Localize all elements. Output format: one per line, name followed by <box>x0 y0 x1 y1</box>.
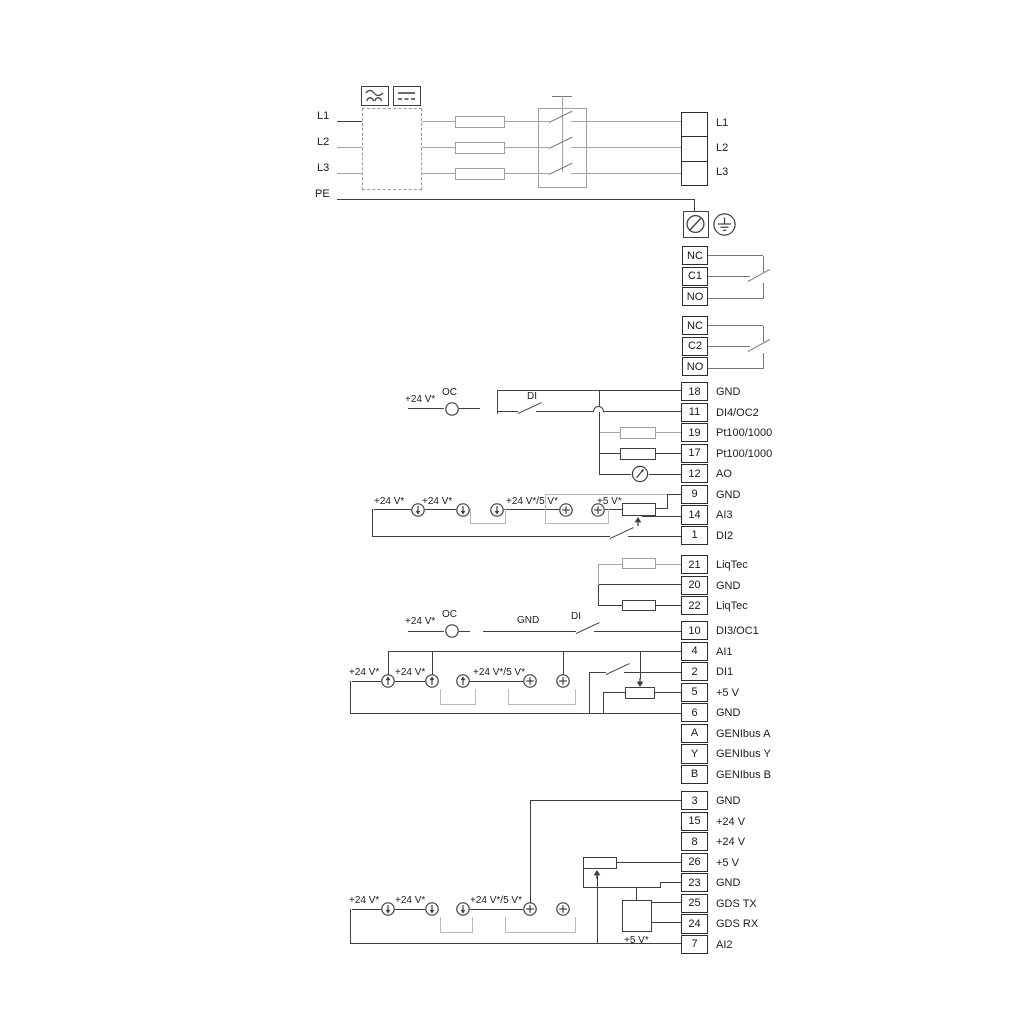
wire-segment <box>708 368 763 369</box>
terminal-18: 18 <box>681 382 708 401</box>
voltage-source-icon <box>559 503 573 517</box>
terminal-12: 12 <box>681 464 708 483</box>
terminal-label-out-L2: L2 <box>716 142 728 154</box>
terminal-Y: Y <box>681 744 708 763</box>
terminal-2: 2 <box>681 662 708 681</box>
terminal-label-12: AO <box>716 468 732 480</box>
terminal-label-23: GND <box>716 877 740 889</box>
resistor-liqtec <box>622 600 656 611</box>
wire-segment <box>624 672 681 673</box>
wire-segment <box>459 408 480 409</box>
wire-segment <box>545 523 608 524</box>
label-di-di4: DI <box>527 391 537 402</box>
terminal-23: 23 <box>681 873 708 892</box>
wire-segment <box>505 173 538 174</box>
wire-segment <box>598 564 622 565</box>
wire-segment <box>594 631 681 632</box>
wire-segment <box>472 917 473 933</box>
wire-segment <box>656 564 681 565</box>
wire-segment <box>504 509 559 510</box>
label-24v-ai2-a: +24 V* <box>349 895 379 906</box>
wire-segment <box>628 536 681 537</box>
wire-segment <box>587 147 681 148</box>
current-source-icon <box>456 674 470 688</box>
wire-segment <box>617 862 681 863</box>
terminal-label-5: +5 V <box>716 687 739 699</box>
wire-segment <box>337 147 362 148</box>
terminal-label-10: DI3/OC1 <box>716 625 759 637</box>
wire-segment <box>708 346 750 347</box>
di-switch <box>576 622 600 634</box>
terminal-label-out-L3: L3 <box>716 166 728 178</box>
label-line-l2: L2 <box>317 136 329 148</box>
wiper-arrow <box>632 517 644 526</box>
terminal-5: 5 <box>681 683 708 702</box>
wire-segment <box>763 326 764 342</box>
wire-segment <box>571 121 587 122</box>
terminal-label-out-L1: L1 <box>716 117 728 129</box>
wire-segment <box>660 882 661 888</box>
wire-segment <box>508 689 509 705</box>
wire-segment <box>598 564 599 585</box>
voltage-source-icon <box>556 674 570 688</box>
wire-segment <box>598 585 599 606</box>
label-di-di3: DI <box>571 611 581 622</box>
terminal-10: 10 <box>681 621 708 640</box>
gds-sensor-box <box>622 900 652 932</box>
relay-terminal-NC: NC <box>682 316 708 335</box>
relay-contact <box>748 339 771 352</box>
wire-segment <box>530 800 681 801</box>
wire-segment <box>425 509 456 510</box>
terminal-label-19: Pt100/1000 <box>716 427 772 439</box>
wire-segment <box>587 173 681 174</box>
current-sink-icon <box>425 902 439 916</box>
potentiometer-ai3 <box>622 503 656 516</box>
ac-waveform-icon <box>361 86 389 106</box>
terminal-17: 17 <box>681 444 708 463</box>
wire-segment <box>352 909 381 910</box>
wire-segment <box>505 147 538 148</box>
terminal-divider <box>682 136 707 137</box>
terminal-label-A: GENIbus A <box>716 728 770 740</box>
wire-segment <box>763 256 764 272</box>
relay-terminal-C1: C1 <box>682 267 708 286</box>
wire-segment <box>598 584 681 585</box>
wire-segment <box>667 494 681 495</box>
relay-terminal-C2: C2 <box>682 337 708 356</box>
terminal-label-3: GND <box>716 795 740 807</box>
wire-segment <box>530 800 531 903</box>
terminal-21: 21 <box>681 555 708 574</box>
terminal-3: 3 <box>681 791 708 810</box>
wiper-arrow <box>634 678 646 687</box>
wire-segment <box>599 432 620 433</box>
label-24v5v-ai2: +24 V*/5 V* <box>470 895 522 906</box>
wire-segment <box>599 453 620 454</box>
terminal-label-11: DI4/OC2 <box>716 407 759 419</box>
wire-segment <box>563 651 564 675</box>
wire-segment <box>350 681 351 714</box>
wire-segment <box>708 325 763 326</box>
wire-segment <box>583 869 584 888</box>
label-line-l1: L1 <box>317 110 329 122</box>
wire-segment <box>597 876 598 944</box>
terminal-1: 1 <box>681 526 708 545</box>
voltage-source-icon <box>523 674 537 688</box>
label-5v-ai2: +5 V* <box>624 935 649 946</box>
label-24v5v-ai3: +24 V*/5 V* <box>506 496 558 507</box>
wire-segment <box>372 509 373 537</box>
wire-segment <box>587 121 681 122</box>
wire-segment <box>656 508 667 509</box>
wire-segment <box>470 909 523 910</box>
power-terminal-block <box>681 112 708 186</box>
wire-segment <box>440 704 475 705</box>
filter-dashed-box <box>362 108 422 190</box>
label-gnd-di3: GND <box>517 615 539 626</box>
open-collector-icon <box>445 402 459 416</box>
terminal-4: 4 <box>681 642 708 661</box>
wire-segment <box>589 672 590 713</box>
wire-segment <box>350 909 351 944</box>
current-source-icon <box>425 674 439 688</box>
wire-segment <box>470 523 505 524</box>
wire-segment <box>598 605 622 606</box>
terminal-6: 6 <box>681 703 708 722</box>
terminal-label-B: GENIbus B <box>716 769 771 781</box>
terminal-label-8: +24 V <box>716 836 745 848</box>
wire-segment <box>422 173 455 174</box>
wire-segment <box>459 631 470 632</box>
terminal-divider <box>682 161 707 162</box>
terminal-14: 14 <box>681 505 708 524</box>
terminal-label-9: GND <box>716 489 740 501</box>
label-24v-di3: +24 V* <box>405 616 435 627</box>
label-24v-ai3-a: +24 V* <box>374 496 404 507</box>
terminal-26: 26 <box>681 853 708 872</box>
wire-segment <box>422 121 455 122</box>
wire-segment <box>508 704 575 705</box>
wire-segment <box>422 147 455 148</box>
wire-segment <box>575 917 576 933</box>
wire-segment <box>589 672 606 673</box>
terminal-label-18: GND <box>716 386 740 398</box>
dc-lines-icon <box>393 86 421 106</box>
wire-segment <box>571 173 587 174</box>
wire-segment <box>352 681 381 682</box>
resistor-liqtec <box>622 558 656 569</box>
wire-segment <box>497 390 681 391</box>
terminal-label-20: GND <box>716 580 740 592</box>
di-switch <box>518 402 542 414</box>
fuse <box>455 168 505 180</box>
open-collector-icon <box>445 624 459 638</box>
wire-segment <box>652 922 681 923</box>
terminal-25: 25 <box>681 894 708 913</box>
wire-segment <box>708 255 763 256</box>
label-line-pe: PE <box>315 188 330 200</box>
label-line-l3: L3 <box>317 162 329 174</box>
terminal-7: 7 <box>681 935 708 954</box>
wire-segment <box>608 509 609 524</box>
wire-segment <box>655 692 681 693</box>
terminal-B: B <box>681 765 708 784</box>
wire-segment <box>656 453 681 454</box>
label-24v-di4: +24 V* <box>405 394 435 405</box>
terminal-label-1: DI2 <box>716 530 733 542</box>
di-switch <box>610 527 634 539</box>
wire-segment <box>432 651 433 675</box>
wiring-diagram: L1 L2 L3 PE 18GND11DI4/OC219Pt100/100017… <box>0 0 1024 1024</box>
wire-segment <box>708 276 750 277</box>
label-5v-ai3: +5 V* <box>597 496 622 507</box>
wire-segment <box>763 353 764 369</box>
wire-segment <box>470 681 523 682</box>
terminal-label-17: Pt100/1000 <box>716 448 772 460</box>
wire-segment <box>395 681 425 682</box>
wire-segment <box>652 902 681 903</box>
resistor-pt100 <box>620 427 656 439</box>
wire-segment <box>337 173 362 174</box>
wire-segment <box>497 390 498 414</box>
wire-segment <box>408 631 444 632</box>
terminal-22: 22 <box>681 596 708 615</box>
wire-segment <box>640 651 641 679</box>
label-oc-di3: OC <box>442 609 457 620</box>
wire-segment <box>649 474 681 475</box>
terminal-label-24: GDS RX <box>716 918 758 930</box>
terminal-label-26: +5 V <box>716 857 739 869</box>
potentiometer-ai1 <box>625 687 655 699</box>
current-source-icon <box>381 674 395 688</box>
terminal-label-7: AI2 <box>716 939 733 951</box>
wire-segment <box>497 411 518 412</box>
wire-segment <box>603 692 604 714</box>
wire-segment <box>374 509 411 510</box>
terminal-20: 20 <box>681 576 708 595</box>
terminal-24: 24 <box>681 914 708 933</box>
wire-segment <box>583 887 660 888</box>
current-sink-icon <box>490 503 504 517</box>
wire-segment <box>642 516 681 517</box>
wire-segment <box>536 411 594 412</box>
voltage-source-icon <box>556 902 570 916</box>
label-24v-ai1-b: +24 V* <box>395 667 425 678</box>
wire-segment <box>538 173 549 174</box>
terminal-label-2: DI1 <box>716 666 733 678</box>
pe-terminal-icon <box>683 211 709 238</box>
label-24v-ai1-a: +24 V* <box>349 667 379 678</box>
wire-segment <box>604 411 681 412</box>
wire-segment <box>763 283 764 299</box>
voltage-source-icon <box>523 902 537 916</box>
di-switch <box>606 663 630 675</box>
wire-segment <box>603 692 625 693</box>
wire-segment <box>571 147 587 148</box>
wire-segment <box>395 909 425 910</box>
terminal-label-22: LiqTec <box>716 600 748 612</box>
wire-segment <box>505 917 506 933</box>
wire-segment <box>575 689 576 705</box>
wire-segment <box>475 689 476 705</box>
wire-segment <box>483 631 576 632</box>
terminal-label-4: AI1 <box>716 646 733 658</box>
wire-segment <box>505 121 538 122</box>
terminal-11: 11 <box>681 403 708 422</box>
wire-segment <box>337 199 694 200</box>
wire-segment <box>538 147 549 148</box>
terminal-label-21: LiqTec <box>716 559 748 571</box>
wire-segment <box>440 932 472 933</box>
wire-segment <box>372 536 610 537</box>
terminal-A: A <box>681 724 708 743</box>
wire-segment <box>408 408 444 409</box>
wire-segment <box>337 121 362 122</box>
label-24v-ai3-b: +24 V* <box>422 496 452 507</box>
earth-ground-icon <box>712 212 737 237</box>
current-sink-icon <box>456 503 470 517</box>
current-sink-icon <box>381 902 395 916</box>
wire-segment <box>656 605 681 606</box>
wire-segment <box>660 882 681 883</box>
terminal-label-15: +24 V <box>716 816 745 828</box>
fuse <box>455 116 505 128</box>
wiper-arrow <box>591 870 603 879</box>
relay-terminal-NC: NC <box>682 246 708 265</box>
wire-segment <box>599 390 600 475</box>
wire-segment <box>599 474 631 475</box>
wire-segment <box>505 509 506 524</box>
terminal-15: 15 <box>681 812 708 831</box>
label-oc-di4: OC <box>442 387 457 398</box>
terminal-9: 9 <box>681 485 708 504</box>
wire-segment <box>636 887 637 900</box>
meter-icon <box>631 465 649 483</box>
wire-segment <box>350 713 681 714</box>
terminal-19: 19 <box>681 423 708 442</box>
relay-terminal-NO: NO <box>682 357 708 376</box>
label-24v-ai2-b: +24 V* <box>395 895 425 906</box>
terminal-label-14: AI3 <box>716 509 733 521</box>
wire-segment <box>470 509 471 524</box>
current-sink-icon <box>456 902 470 916</box>
terminal-label-25: GDS TX <box>716 898 757 910</box>
wire-segment <box>388 651 389 675</box>
potentiometer-ai2 <box>583 857 617 869</box>
relay-contact <box>748 269 771 282</box>
wire-segment <box>505 932 575 933</box>
wire-hop <box>593 406 604 412</box>
terminal-label-6: GND <box>716 707 740 719</box>
wire-segment <box>545 509 546 524</box>
terminal-label-Y: GENIbus Y <box>716 748 771 760</box>
wire-segment <box>440 689 441 705</box>
wire-segment <box>562 96 563 172</box>
wire-segment <box>667 494 668 509</box>
label-24v5v-ai1: +24 V*/5 V* <box>473 667 525 678</box>
wire-segment <box>656 432 681 433</box>
wire-segment <box>708 298 763 299</box>
wire-segment <box>440 917 441 933</box>
wire-segment <box>538 121 549 122</box>
resistor-pt100 <box>620 448 656 460</box>
fuse <box>455 142 505 154</box>
terminal-8: 8 <box>681 832 708 851</box>
relay-terminal-NO: NO <box>682 287 708 306</box>
